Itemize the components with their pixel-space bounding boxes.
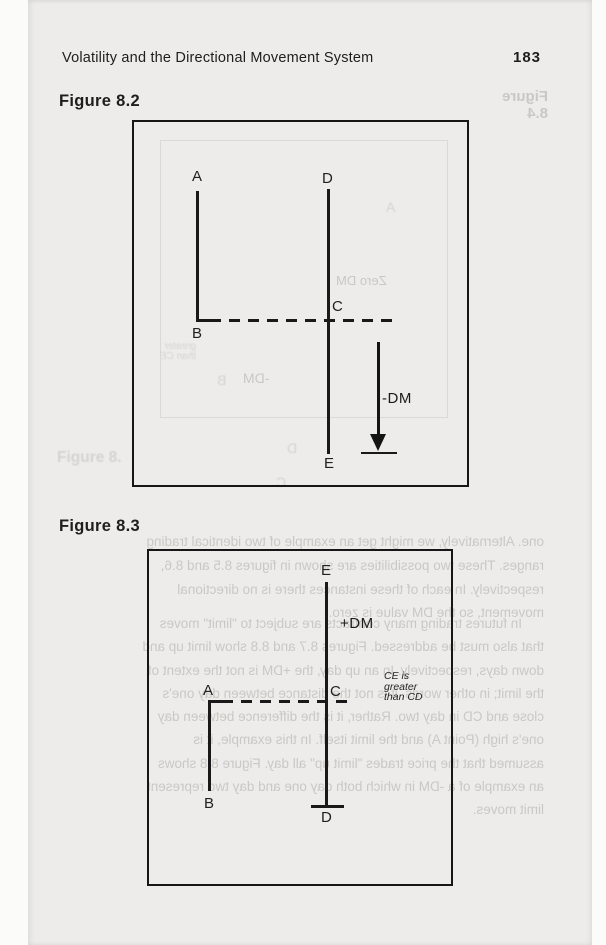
fig3-note-line: than CD: [384, 692, 423, 703]
fig2-point-a-label: A: [192, 169, 202, 184]
fig3-note-line: CE is: [384, 671, 423, 682]
fig2-point-c-label: C: [332, 299, 343, 314]
fig3-limit-tick: [311, 805, 344, 808]
fig2-minus-dm-annotation: -DM: [382, 391, 412, 406]
fig3-point-e-label: E: [321, 563, 331, 578]
fig2-day2-range-line: [327, 189, 330, 454]
fig3-point-d-label: D: [321, 810, 332, 825]
fig2-down-arrow-head: [370, 434, 386, 451]
fig3-ce-greater-note: CE is greater than CD: [384, 671, 423, 703]
fig2-down-arrow-shaft: [377, 342, 380, 435]
figure-8-3-frame: [147, 549, 453, 886]
fig3-point-a-label: A: [203, 683, 213, 698]
page-number: 183: [513, 49, 541, 66]
fig2-day1-range-line: [196, 191, 199, 322]
figure-8-2-caption: Figure 8.2: [59, 92, 140, 111]
fig3-point-c-label: C: [330, 684, 341, 699]
fig3-day1-range-line: [208, 701, 211, 791]
fig3-day2-range-line: [325, 582, 328, 807]
scanned-book-page: Figure 8.4 Figure 8. Zero DM A B C D -DM…: [0, 0, 606, 945]
fig2-point-b-label: B: [192, 326, 202, 341]
fig2-dashed-level-line: [210, 319, 394, 322]
fig3-dashed-level-line: [222, 700, 353, 703]
running-head-title: Volatility and the Directional Movement …: [62, 50, 373, 66]
fig2-point-e-label: E: [324, 456, 334, 471]
fig2-point-d-label: D: [322, 171, 333, 186]
figure-8-3-caption: Figure 8.3: [59, 517, 140, 536]
ink-layer: Volatility and the Directional Movement …: [0, 0, 606, 945]
fig2-corner-segment: [196, 319, 210, 322]
fig3-point-b-label: B: [204, 796, 214, 811]
figure-8-2-frame: [132, 120, 469, 487]
fig2-arrow-base-tick: [361, 452, 397, 454]
fig3-plus-dm-annotation: +DM: [340, 616, 374, 631]
